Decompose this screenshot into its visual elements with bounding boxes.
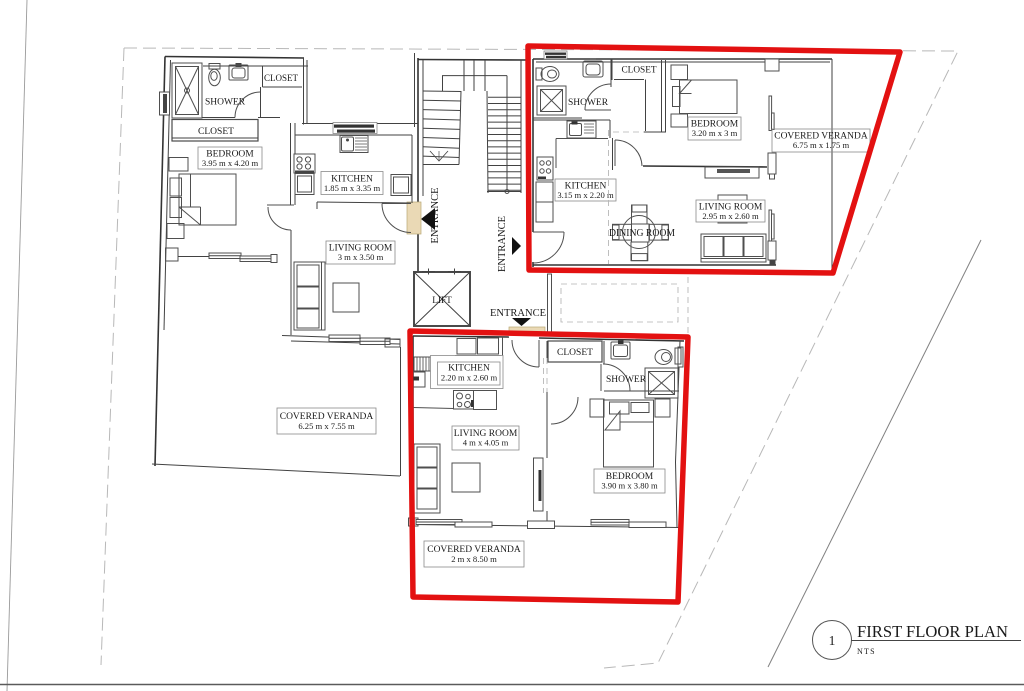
- svg-text:6.25 m x 7.55 m: 6.25 m x 7.55 m: [298, 421, 355, 431]
- svg-text:ENTRANCE: ENTRANCE: [490, 308, 546, 319]
- svg-text:2.20 m x 2.60 m: 2.20 m x 2.60 m: [441, 373, 498, 383]
- svg-text:SHOWER: SHOWER: [568, 98, 609, 108]
- svg-text:2 m x 8.50 m: 2 m x 8.50 m: [451, 554, 497, 564]
- svg-text:3 m x 3.50 m: 3 m x 3.50 m: [338, 252, 384, 262]
- svg-text:ENTRANCE: ENTRANCE: [497, 216, 508, 272]
- svg-text:3.15 m x 2.20 m: 3.15 m x 2.20 m: [557, 190, 614, 200]
- svg-text:FIRST FLOOR PLAN: FIRST FLOOR PLAN: [857, 622, 1008, 641]
- svg-text:CLOSET: CLOSET: [557, 348, 593, 358]
- svg-text:1.85 m x 3.35 m: 1.85 m x 3.35 m: [324, 183, 381, 193]
- svg-text:CLOSET: CLOSET: [198, 127, 234, 137]
- svg-text:3.95 m x 4.20 m: 3.95 m x 4.20 m: [202, 158, 259, 168]
- svg-text:SHOWER: SHOWER: [606, 375, 647, 385]
- svg-text:3.90 m x 3.80 m: 3.90 m x 3.80 m: [601, 481, 658, 491]
- svg-text:CLOSET: CLOSET: [264, 73, 299, 83]
- svg-text:4 m x 4.05 m: 4 m x 4.05 m: [463, 438, 509, 448]
- svg-text:CLOSET: CLOSET: [621, 66, 656, 76]
- svg-text:NTS: NTS: [857, 647, 876, 656]
- svg-text:DINING ROOM: DINING ROOM: [609, 228, 676, 239]
- svg-text:LIFT: LIFT: [432, 296, 452, 306]
- svg-text:2.95 m x 2.60 m: 2.95 m x 2.60 m: [702, 211, 759, 221]
- svg-text:1: 1: [829, 633, 836, 648]
- svg-text:6.75 m x 1.75 m: 6.75 m x 1.75 m: [793, 140, 850, 150]
- svg-text:3.20 m x 3 m: 3.20 m x 3 m: [692, 128, 738, 138]
